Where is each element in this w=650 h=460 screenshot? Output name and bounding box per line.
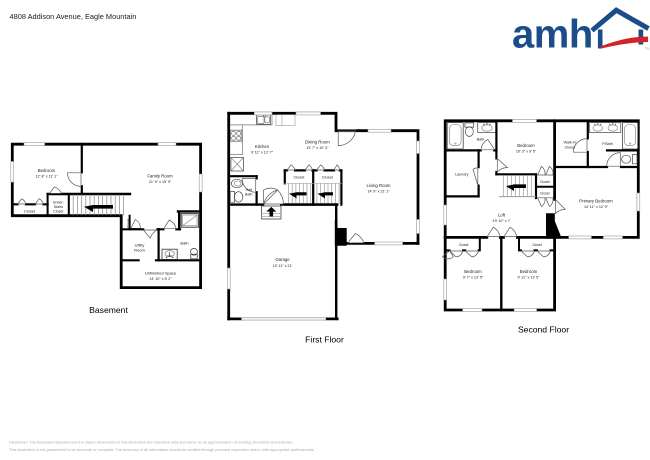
svg-text:14' 9" x 21' 1": 14' 9" x 21' 1" [367,190,390,194]
svg-text:13' 7" x 10' 3": 13' 7" x 10' 3" [306,146,329,150]
svg-text:TM: TM [645,47,650,51]
svg-text:14' 10" x 5' 2": 14' 10" x 5' 2" [149,277,172,281]
svg-text:Bedroom: Bedroom [464,269,482,274]
svg-text:Bedroom: Bedroom [517,143,535,148]
svg-text:Basement: Basement [89,305,128,315]
svg-text:Half: Half [246,188,254,192]
svg-text:Closet: Closet [53,210,63,214]
svg-text:21' 9" x 15' 9": 21' 9" x 15' 9" [149,180,172,184]
svg-text:Closet: Closet [24,209,36,214]
svg-text:Living Room: Living Room [367,183,391,188]
svg-text:14' 11" x 12' 9": 14' 11" x 12' 9" [584,205,609,209]
svg-text:Unfinished Space: Unfinished Space [145,271,177,276]
svg-text:Closet: Closet [322,174,334,179]
svg-text:Closet: Closet [540,180,550,184]
svg-text:Closet: Closet [565,145,575,149]
svg-text:Garage: Garage [275,257,290,262]
svg-text:Walk-In: Walk-In [564,141,576,145]
svg-text:amh: amh [512,13,593,57]
svg-text:Stairs: Stairs [54,205,63,209]
svg-text:12' 8" x 11' 1": 12' 8" x 11' 1" [36,175,59,179]
svg-text:4808 Addison Avenue, Eagle Mou: 4808 Addison Avenue, Eagle Mountain [10,12,137,21]
svg-text:19' 11" x 21': 19' 11" x 21' [273,264,293,268]
svg-text:Bath: Bath [245,193,253,197]
svg-text:19' 10" x 7': 19' 10" x 7' [493,219,511,223]
svg-text:Bedroom: Bedroom [38,168,56,173]
svg-text:Bath: Bath [180,241,188,246]
svg-text:First Floor: First Floor [305,335,344,345]
svg-text:P.Bath: P.Bath [602,142,613,146]
svg-text:Closet: Closet [126,219,130,228]
svg-text:9' 11" x 12' 7": 9' 11" x 12' 7" [251,151,274,155]
svg-text:Closet: Closet [459,243,469,247]
svg-text:Room: Room [134,248,145,253]
svg-text:Kitchen: Kitchen [255,144,270,149]
svg-text:Bath: Bath [477,137,485,141]
svg-text:Family Room: Family Room [147,174,173,179]
svg-text:Bedroom: Bedroom [520,269,538,274]
svg-text:9' 7" x 13' 5": 9' 7" x 13' 5" [463,276,484,280]
svg-text:This illustration is not guara: This illustration is not guaranteed to b… [9,447,315,452]
svg-text:Closet: Closet [293,174,305,179]
svg-text:Second Floor: Second Floor [518,325,569,335]
svg-text:9' 11" x 13' 5": 9' 11" x 13' 5" [518,276,541,280]
svg-text:Closet: Closet [532,243,542,247]
svg-text:Dining Room: Dining Room [305,140,330,145]
svg-text:Under-: Under- [53,200,65,204]
svg-text:Closet: Closet [540,192,550,196]
svg-text:Laundry: Laundry [455,173,468,177]
svg-text:Primary Bedroom: Primary Bedroom [579,198,613,203]
svg-text:Loft: Loft [498,213,506,218]
svg-text:Disclaimer: The floorplans dep: Disclaimer: The floorplans depicted and … [9,440,293,445]
svg-text:10' 3" x 9' 5": 10' 3" x 9' 5" [516,150,537,154]
